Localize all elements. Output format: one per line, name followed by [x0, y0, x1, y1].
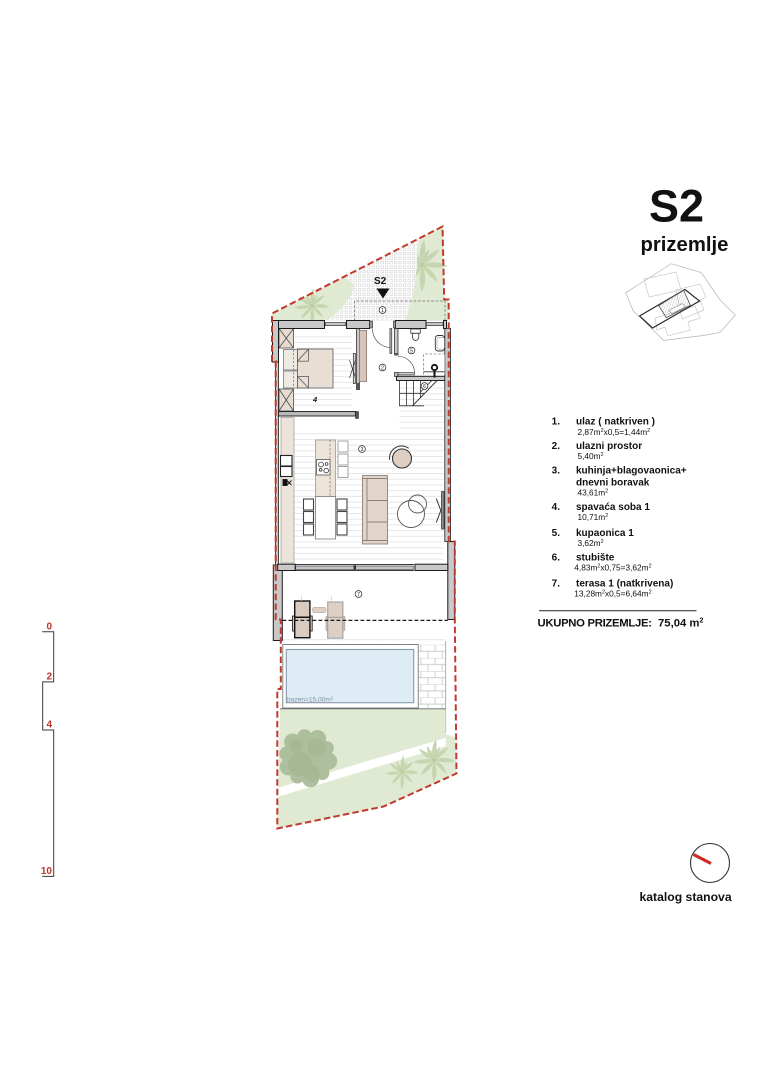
svg-text:2: 2	[381, 366, 384, 372]
svg-text:UKUPNO PRIZEMLJE:: UKUPNO PRIZEMLJE:	[538, 618, 652, 630]
svg-text:4: 4	[46, 720, 52, 731]
svg-text:6: 6	[423, 384, 426, 390]
svg-text:3.: 3.	[552, 465, 561, 476]
svg-text:3: 3	[361, 447, 364, 453]
svg-text:1: 1	[381, 308, 384, 314]
svg-text:3,62m2: 3,62m2	[578, 538, 604, 548]
svg-text:4: 4	[312, 395, 318, 404]
svg-text:kuhinja+blagovaonica+: kuhinja+blagovaonica+	[576, 465, 687, 476]
svg-text:katalog stanova: katalog stanova	[640, 890, 732, 904]
svg-text:6.: 6.	[552, 552, 561, 563]
svg-text:0: 0	[46, 622, 52, 633]
svg-text:5,40m2: 5,40m2	[578, 451, 604, 461]
svg-text:S2: S2	[649, 181, 704, 232]
svg-text:75,04 m2: 75,04 m2	[658, 618, 703, 630]
svg-text:13,28m2x0,5=6,64m2: 13,28m2x0,5=6,64m2	[574, 588, 651, 598]
svg-text:10,71m2: 10,71m2	[578, 512, 609, 522]
svg-text:2: 2	[46, 672, 52, 683]
svg-text:7: 7	[357, 592, 360, 598]
svg-text:4.: 4.	[552, 502, 561, 513]
svg-text:7.: 7.	[552, 578, 561, 589]
svg-text:prizemlje: prizemlje	[641, 234, 729, 256]
svg-text:5.: 5.	[552, 528, 561, 539]
svg-text:43,61m2: 43,61m2	[578, 488, 609, 498]
svg-text:bazen=15,00m2: bazen=15,00m2	[287, 696, 334, 704]
svg-text:1.: 1.	[552, 417, 561, 428]
svg-text:2.: 2.	[552, 441, 561, 452]
svg-text:S2: S2	[374, 276, 387, 287]
svg-text:5: 5	[410, 349, 413, 355]
svg-text:10: 10	[41, 866, 53, 877]
svg-text:4,83m2x0,75=3,62m2: 4,83m2x0,75=3,62m2	[574, 563, 651, 573]
svg-text:2,87m2x0,5=1,44m2: 2,87m2x0,5=1,44m2	[578, 427, 651, 437]
